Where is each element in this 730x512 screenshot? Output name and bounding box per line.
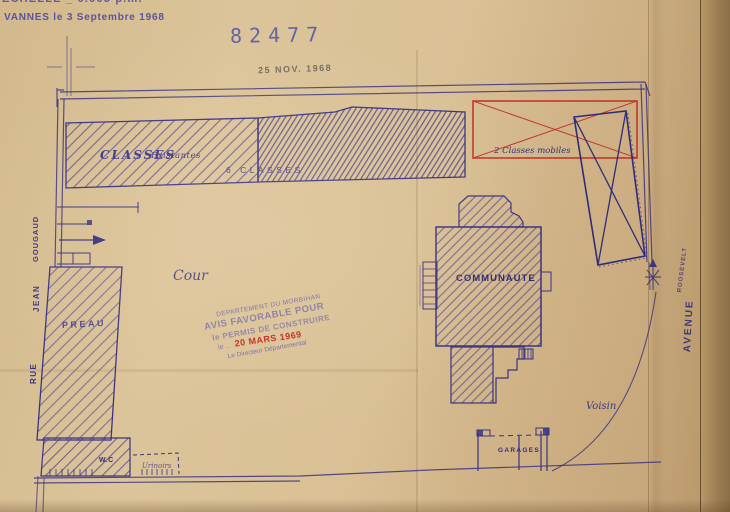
voisin-label: Voisin	[586, 401, 616, 412]
plan-linework	[0, 0, 730, 512]
garages-label: GARAGES	[498, 447, 540, 454]
tilted-building-outline	[574, 111, 647, 267]
preau-building	[37, 267, 122, 440]
gate-swing-arc	[552, 292, 656, 471]
stairs-icon	[420, 262, 437, 309]
street-gougaud-label: GOUGAUD	[31, 216, 40, 262]
urinoirs-label: Urinoirs	[142, 462, 171, 470]
entrance-arrow-icon	[93, 235, 106, 245]
place-date: VANNES le 3 Septembre 1968	[4, 12, 165, 23]
north-arrow-icon	[645, 259, 661, 290]
stamp-date-prefix: le ..	[217, 342, 230, 353]
street-jean-label: JEAN	[32, 285, 41, 312]
entrance-lines	[57, 202, 139, 264]
communaute-annex	[451, 347, 533, 403]
classes-count-label: 6 CLASSES	[226, 165, 304, 175]
wc-label: W.C	[99, 457, 114, 464]
wc-block	[41, 438, 130, 476]
communaute-label: COMMUNAUTE	[456, 273, 536, 284]
communaute-building	[420, 196, 551, 346]
street-rue-label: RUE	[29, 363, 38, 384]
classes-mobiles-label: 2 Classes mobiles	[494, 146, 571, 156]
classes-existantes-label: Existantes	[151, 151, 201, 161]
site-plan-scan: ECHELLE _ 0.005 p.m. VANNES le 3 Septemb…	[0, 0, 730, 512]
cour-label: Cour	[173, 268, 208, 284]
scale-note: ECHELLE _ 0.005 p.m.	[2, 0, 143, 5]
registry-number-stamp: 82477	[230, 22, 326, 48]
steps-icon	[519, 349, 533, 359]
